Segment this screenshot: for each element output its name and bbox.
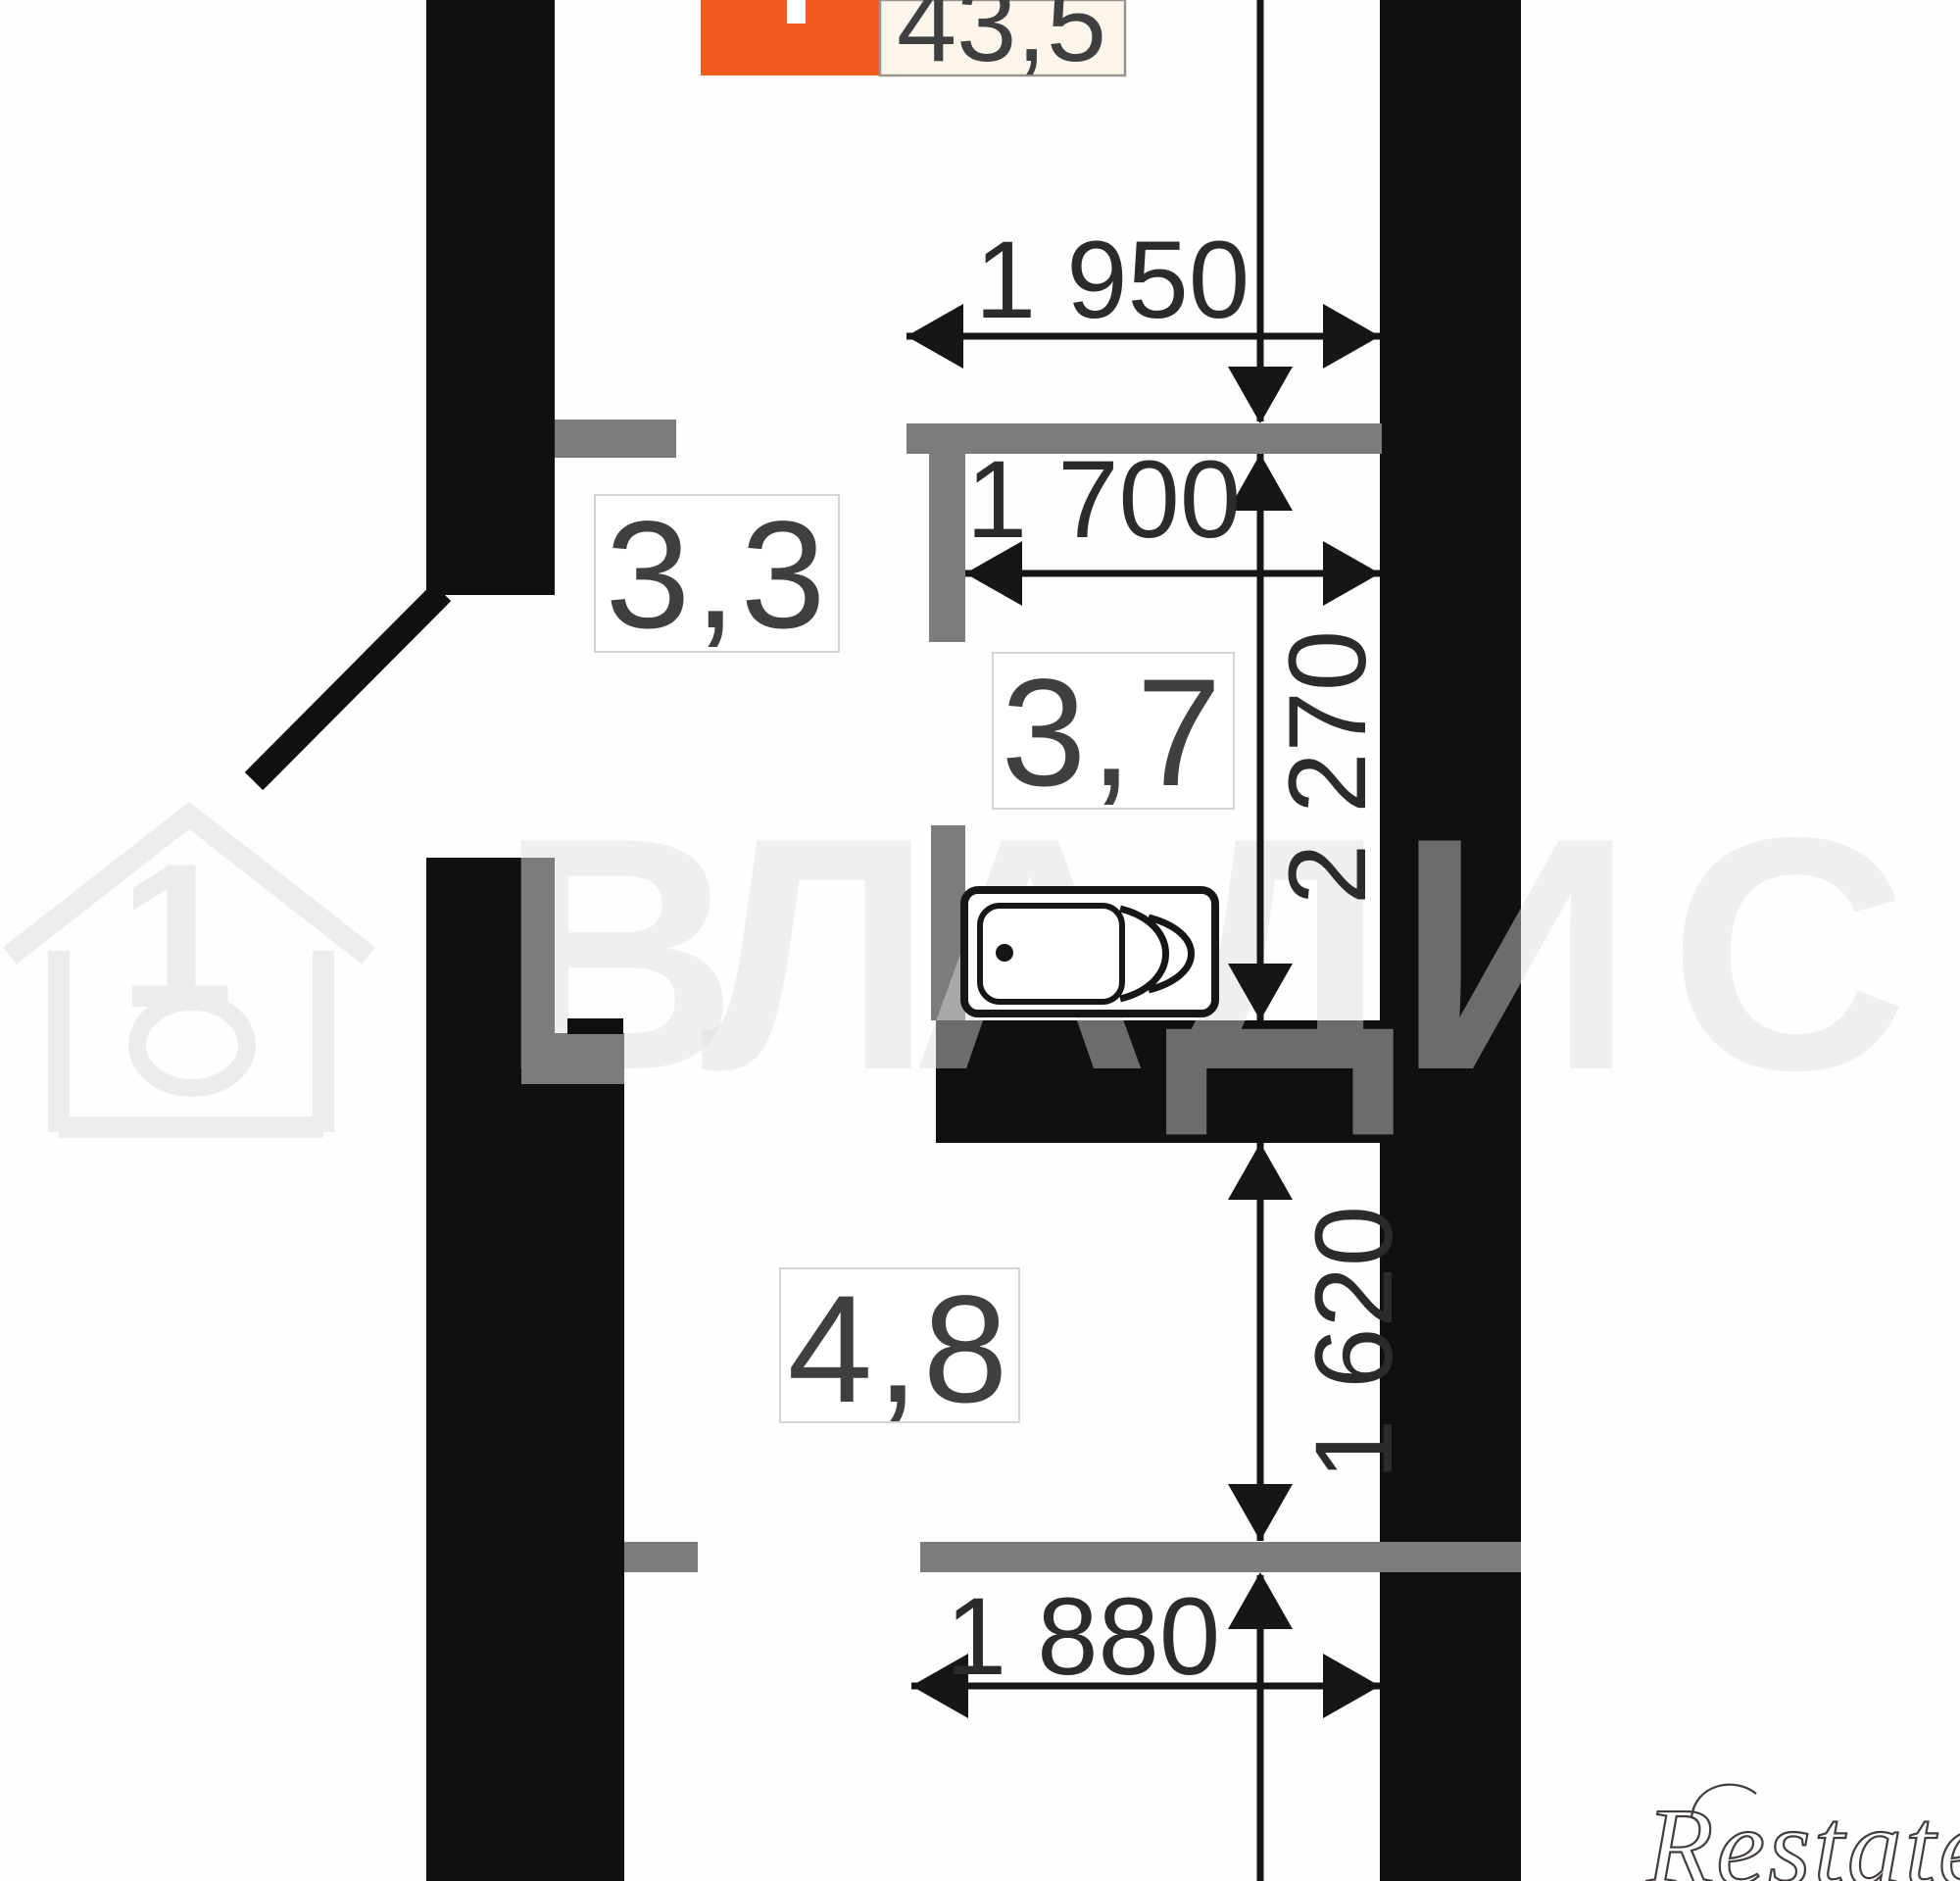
svg-text:4,8: 4,8 [788, 1264, 1012, 1435]
svg-text:2 270: 2 270 [1266, 630, 1389, 905]
svg-text:1: 1 [120, 820, 234, 1051]
svg-text:1 880: 1 880 [946, 1575, 1220, 1698]
svg-text:43,5: 43,5 [897, 0, 1106, 84]
svg-text:1 950: 1 950 [975, 219, 1249, 341]
svg-text:1 620: 1 620 [1293, 1206, 1415, 1480]
svg-text:3,3: 3,3 [606, 490, 830, 661]
svg-text:Restate: Restate [1645, 1787, 1960, 1881]
svg-text:1 700: 1 700 [966, 438, 1241, 561]
svg-text:3,7: 3,7 [1002, 648, 1226, 818]
